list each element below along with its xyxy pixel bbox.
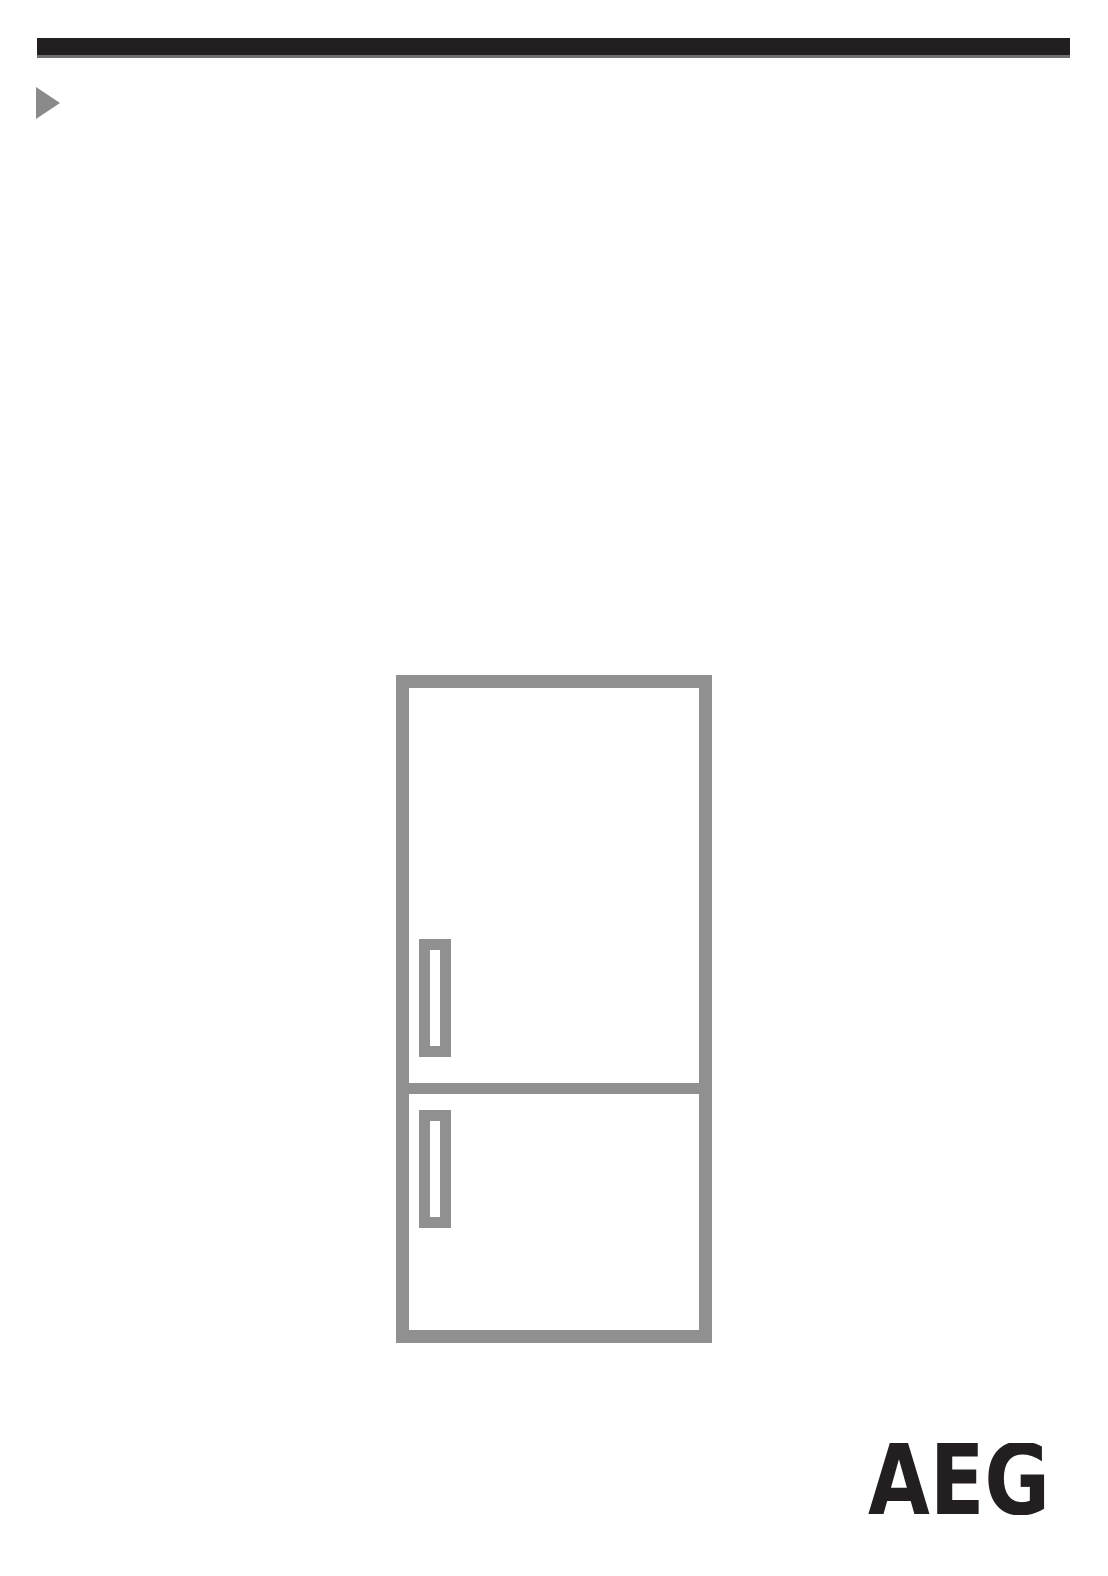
lower-door-handle-icon: [419, 1110, 451, 1228]
upper-door-handle-icon: [419, 939, 451, 1057]
aeg-logo: AEG: [868, 1443, 1050, 1515]
aeg-logo-text: AEG: [868, 1443, 1050, 1515]
header-bar: [37, 38, 1070, 58]
right-triangle-icon: [36, 87, 60, 119]
fridge-freezer-figure-icon: [396, 675, 712, 1343]
manual-cover-page: AEG: [0, 0, 1108, 1576]
fridge-door-divider: [409, 1083, 699, 1094]
